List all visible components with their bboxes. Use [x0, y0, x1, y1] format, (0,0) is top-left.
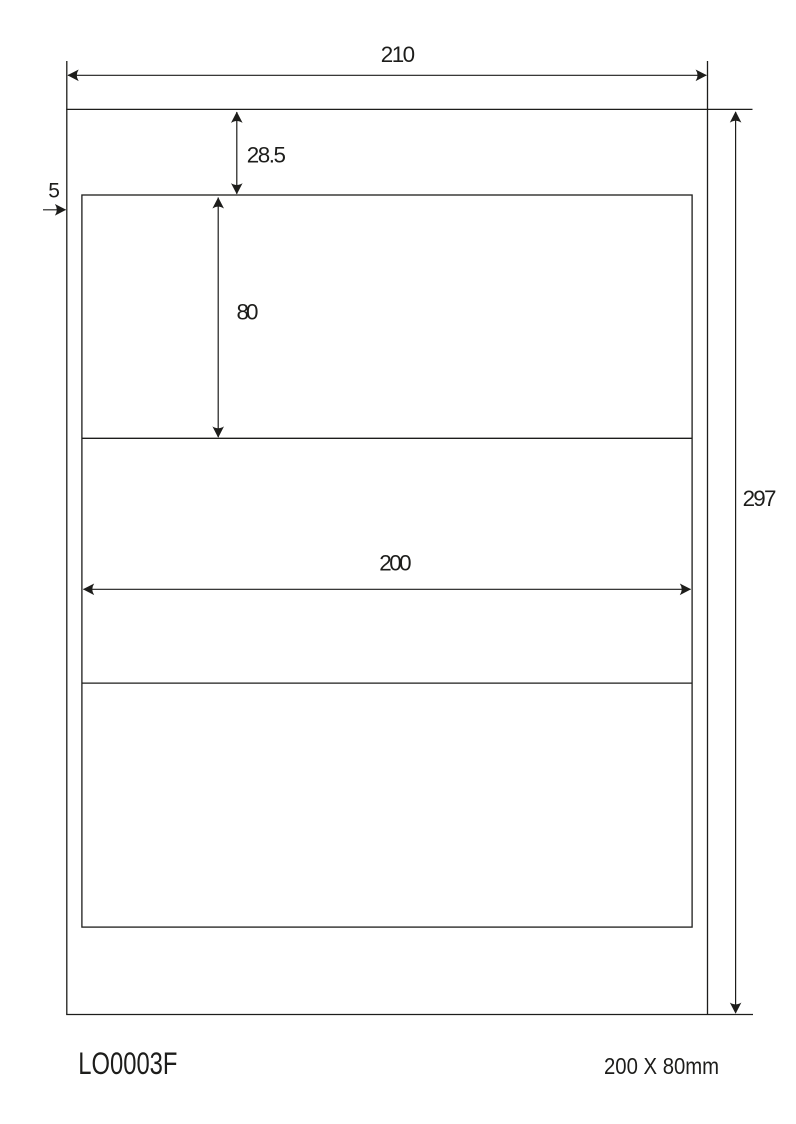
svg-text:80: 80 — [237, 300, 259, 325]
svg-text:200 X 80mm: 200 X 80mm — [604, 1053, 719, 1079]
svg-text:200: 200 — [379, 550, 411, 575]
svg-text:210: 210 — [381, 42, 415, 67]
svg-text:LO0003F: LO0003F — [78, 1045, 177, 1081]
svg-text:28.5: 28.5 — [247, 143, 286, 168]
svg-text:5: 5 — [48, 180, 60, 203]
svg-text:297: 297 — [743, 486, 777, 511]
